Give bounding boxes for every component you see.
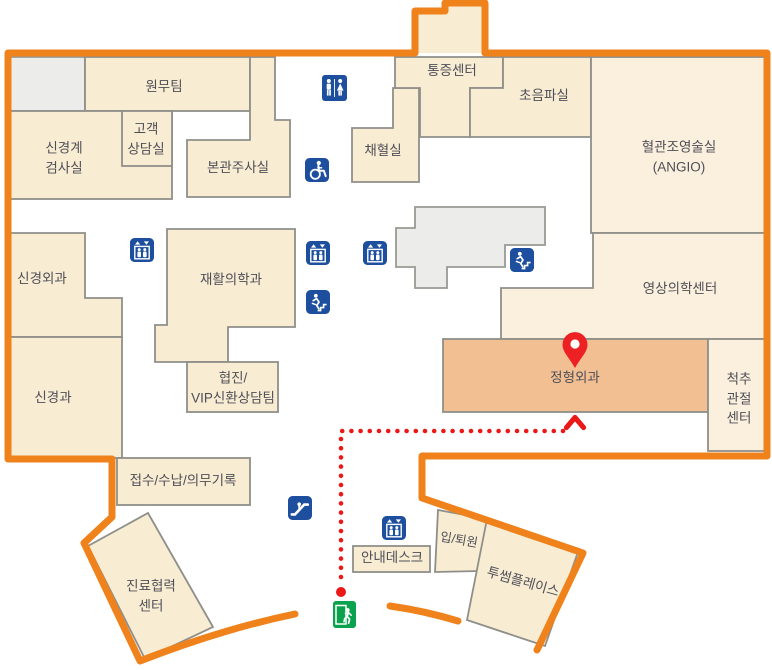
room-twosome[interactable] <box>467 519 579 646</box>
room-blood-draw[interactable] <box>352 88 419 182</box>
building-outline-arc <box>390 606 458 621</box>
elevator-icon <box>363 241 387 265</box>
stairs-icon <box>306 290 330 314</box>
floor-map-canvas <box>0 0 772 670</box>
elevator-icon <box>382 516 406 540</box>
escalator-icon <box>288 496 312 520</box>
room-unlabeled-gray <box>8 57 85 111</box>
room-customer-counsel[interactable] <box>122 111 172 166</box>
room-reception[interactable] <box>117 458 250 505</box>
room-rehab[interactable] <box>155 229 295 362</box>
exit-icon <box>333 601 356 628</box>
room-wonmu[interactable] <box>85 57 250 111</box>
route-arrow-icon <box>567 418 584 428</box>
hospital-floor-map: 원무팀 신경계 검사실 고객 상담실 본관주사실 채혈실 통증센터 초음파실 혈… <box>0 0 772 670</box>
destination-pin-hole <box>570 339 579 348</box>
room-neurosurgery[interactable] <box>8 233 122 337</box>
room-info-desk[interactable] <box>353 546 430 572</box>
room-unlabeled-core <box>396 207 545 288</box>
elevator-icon <box>306 241 330 265</box>
elevator-icon <box>130 238 154 262</box>
room-vip-counsel[interactable] <box>187 362 278 412</box>
room-spine-joint[interactable] <box>708 339 766 451</box>
stairs-icon <box>510 248 534 272</box>
room-neurology[interactable] <box>8 337 122 458</box>
room-angio[interactable] <box>591 57 766 233</box>
wheelchair-icon <box>305 158 329 182</box>
restroom-icon <box>322 75 347 101</box>
room-imaging-center[interactable] <box>501 233 766 339</box>
route-start-dot <box>336 587 346 597</box>
